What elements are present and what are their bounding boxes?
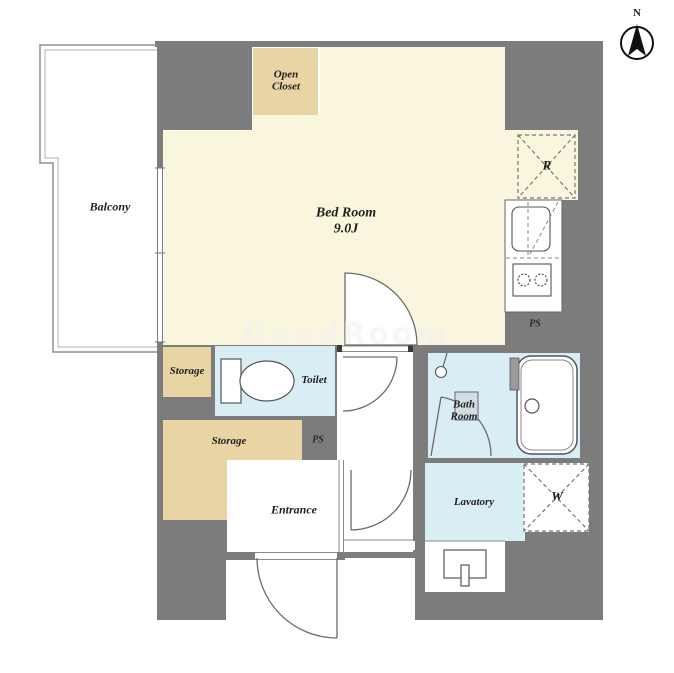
toilet-icon <box>221 359 294 403</box>
bedroom-label-name: Bed Room <box>316 205 376 221</box>
bathroom-label-line1: Bath <box>451 399 478 411</box>
wall-left-upper <box>157 130 163 170</box>
toilet-bowl <box>240 361 294 401</box>
washer-space-label: W <box>551 490 563 505</box>
refrigerator-space-label: R <box>543 159 552 174</box>
wall-top-band <box>155 41 505 47</box>
open-closet-label-line2: Closet <box>272 81 300 93</box>
kitchen-sink <box>512 207 550 251</box>
balcony-label: Balcony <box>90 200 131 213</box>
wall-bottomleft-block <box>157 520 226 620</box>
wall-washer-right <box>589 463 603 532</box>
bedroom-label: Bed Room 9.0J <box>316 205 376 236</box>
open-closet-label-line1: Open <box>272 69 300 81</box>
toilet-label: Toilet <box>301 374 326 386</box>
wall-topright-block <box>505 41 603 130</box>
wall-bath-bottom-band <box>428 458 603 463</box>
bedroom-label-size: 9.0J <box>316 221 376 237</box>
wall-right-upper <box>578 130 603 200</box>
ps-hall-label: PS <box>312 434 324 445</box>
open-closet-label: Open Closet <box>272 69 300 94</box>
floor-plan: Balcony Open Closet Bed Room 9.0J Storag… <box>0 0 674 673</box>
entrance-door-swing <box>257 558 337 638</box>
bathroom-label: Bath Room <box>451 399 478 424</box>
wall-lavatory-left <box>413 463 425 541</box>
bathtub-icon <box>510 356 577 454</box>
wall-right-mid <box>562 200 603 345</box>
wall-bottomright-mass <box>505 532 603 620</box>
wall-topleft-block <box>157 47 252 130</box>
compass-north-label: N <box>633 7 641 19</box>
watermark: GoodRoom <box>243 317 450 352</box>
storage-large-label: Storage <box>212 435 247 447</box>
wall-hall-bath <box>413 353 428 463</box>
storage-small-label: Storage <box>170 365 205 377</box>
wall-bath-right <box>580 353 603 463</box>
wall-vanity-left <box>415 541 425 592</box>
ps-kitchen-label: PS <box>529 318 541 329</box>
kitchen-stove <box>513 264 551 296</box>
bathroom-label-line2: Room <box>451 411 478 423</box>
wall-bottom-under-vanity <box>415 592 505 620</box>
entrance-label: Entrance <box>271 503 317 516</box>
hallway-floor <box>337 345 413 552</box>
toilet-tank <box>221 359 241 403</box>
bath-faucet <box>510 358 519 390</box>
lavatory-label: Lavatory <box>454 496 494 508</box>
compass-icon <box>621 24 653 59</box>
